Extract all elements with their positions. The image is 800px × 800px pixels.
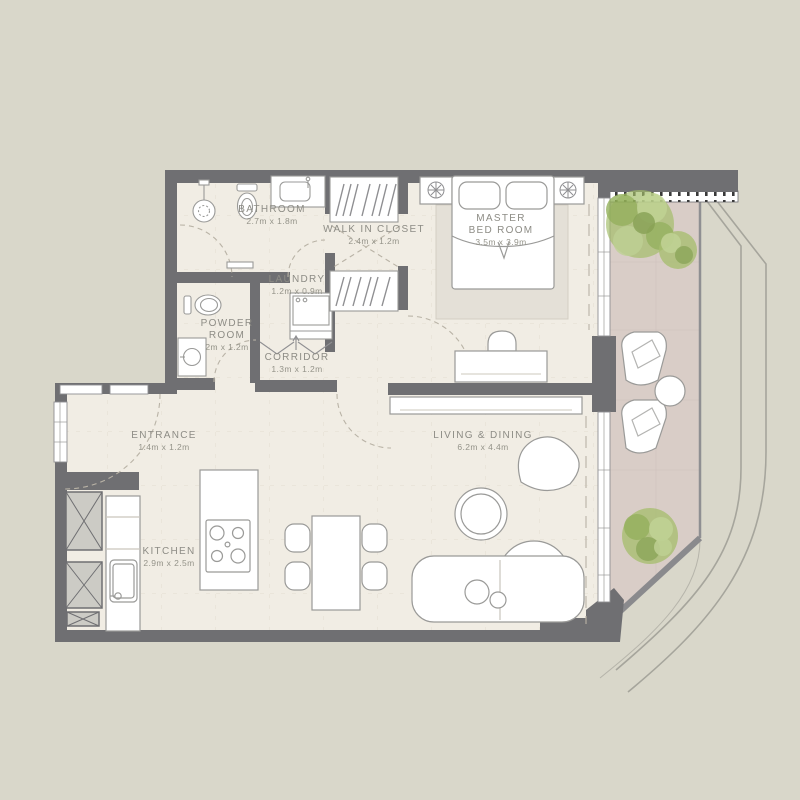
room-name: BATHROOM <box>238 204 305 216</box>
label-entrance: ENTRANCE 1.4m x 1.2m <box>131 430 196 453</box>
service-shaft-icon <box>66 492 102 550</box>
desk-icon <box>455 351 547 382</box>
tree-icon <box>659 231 697 269</box>
label-living-dining: LIVING & DINING 6.2m x 4.4m <box>433 430 533 453</box>
pillow-icon <box>459 182 500 209</box>
room-dims: 3.5m x 3.9m <box>469 237 534 247</box>
label-bathroom: BATHROOM 2.7m x 1.8m <box>238 204 305 227</box>
dining-chair-icon <box>285 524 310 552</box>
floor-plan-page: BATHROOM 2.7m x 1.8m WALK IN CLOSET 2.4m… <box>0 0 800 800</box>
kitchen-sink-icon <box>110 560 137 602</box>
room-dims: 1.2m x 0.9m <box>269 286 326 296</box>
vanity-sink-icon <box>271 176 325 207</box>
wall-right-mid <box>592 336 616 412</box>
coffee-table-icon <box>455 488 507 540</box>
wall-corridor-bottom <box>255 380 337 392</box>
ceiling-lamp-icon <box>428 182 444 198</box>
room-dims: 2.9m x 2.5m <box>143 558 196 568</box>
wall-right-upper <box>598 170 610 198</box>
room-dims: 2m x 1.2m <box>201 342 254 352</box>
wall-powder-bottom <box>165 378 215 390</box>
room-dims: 6.2m x 4.4m <box>433 442 533 452</box>
wall-balcony-top <box>600 170 738 192</box>
wall-bedroom-left-upper <box>398 182 408 214</box>
dining-chair-icon <box>362 562 387 590</box>
window-entrance <box>54 402 67 462</box>
throw-pillow-icon <box>490 592 506 608</box>
room-name: LAUNDRY <box>269 274 326 286</box>
room-name: KITCHEN <box>143 546 196 558</box>
room-name: ENTRANCE <box>131 430 196 442</box>
label-kitchen: KITCHEN 2.9m x 2.5m <box>143 546 196 569</box>
label-powder-room: POWDER ROOM 2m x 1.2m <box>201 318 254 353</box>
room-dims: 1.4m x 1.2m <box>131 442 196 452</box>
ceiling-lamp-icon <box>560 182 576 198</box>
bath-mat-icon <box>227 262 253 268</box>
room-dims: 2.7m x 1.8m <box>238 216 305 226</box>
room-dims: 1.3m x 1.2m <box>265 364 330 374</box>
room-name: MASTER <box>469 213 534 225</box>
room-name: BED ROOM <box>469 225 534 237</box>
wall-bedroom-living <box>388 383 595 395</box>
tv-console-icon <box>390 397 582 414</box>
entry-door-leaf <box>60 385 102 394</box>
wall-bottom <box>55 630 547 642</box>
service-shaft-icon <box>66 562 102 608</box>
wall-bedroom-left-mid <box>398 266 408 310</box>
toilet-icon <box>184 295 221 315</box>
entry-door-leaf-2 <box>110 385 148 394</box>
floor-plan-canvas <box>0 0 800 800</box>
room-dims: 2.4m x 1.2m <box>323 236 425 246</box>
label-walk-in-closet: WALK IN CLOSET 2.4m x 1.2m <box>323 224 425 247</box>
room-name: POWDER <box>201 318 254 330</box>
service-shaft-icon <box>67 612 99 626</box>
label-laundry: LAUNDRY 1.2m x 0.9m <box>269 274 326 297</box>
label-master-bedroom: MASTER BED ROOM 3.5m x 3.9m <box>469 213 534 248</box>
cooktop-icon <box>206 520 250 572</box>
desk-chair-icon <box>488 331 516 351</box>
wall-kitchen-entry <box>63 472 139 490</box>
dining-table-icon <box>312 516 360 610</box>
room-name: CORRIDOR <box>265 352 330 364</box>
throw-pillow-icon <box>465 580 489 604</box>
washing-machine-icon <box>290 293 332 339</box>
label-corridor: CORRIDOR 1.3m x 1.2m <box>265 352 330 375</box>
room-name: LIVING & DINING <box>433 430 533 442</box>
room-name: WALK IN CLOSET <box>323 224 425 236</box>
pillow-icon <box>506 182 547 209</box>
tree-icon <box>622 508 678 564</box>
patio-table-icon <box>655 376 685 406</box>
room-name: ROOM <box>201 330 254 342</box>
dining-chair-icon <box>362 524 387 552</box>
dining-chair-icon <box>285 562 310 590</box>
